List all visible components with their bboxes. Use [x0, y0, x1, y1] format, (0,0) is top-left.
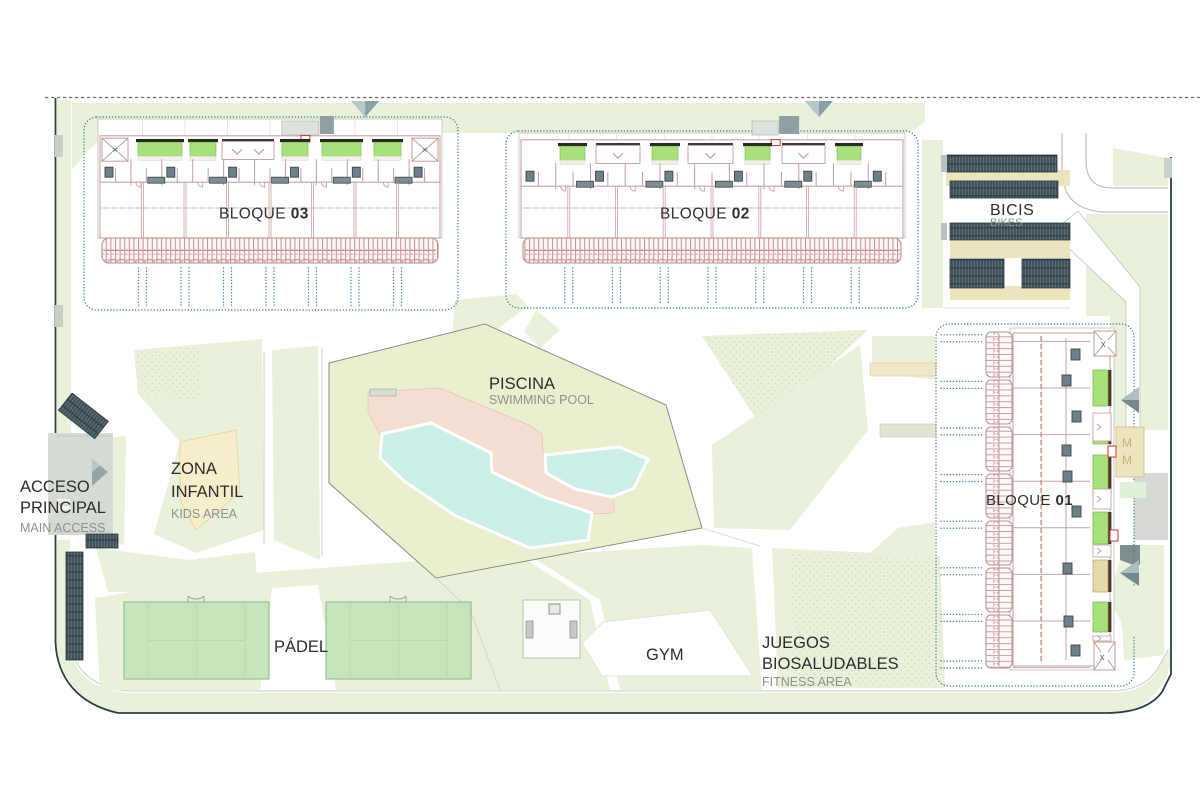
- svg-text:BLOQUE 02: BLOQUE 02: [660, 206, 750, 223]
- svg-text:JUEGOS: JUEGOS: [762, 634, 830, 652]
- svg-text:MAIN ACCESS: MAIN ACCESS: [20, 521, 105, 535]
- svg-text:PISCINA: PISCINA: [489, 375, 555, 393]
- svg-text:ZONA: ZONA: [171, 460, 217, 478]
- svg-text:BLOQUE 01: BLOQUE 01: [986, 492, 1073, 509]
- svg-text:M: M: [1122, 453, 1132, 467]
- svg-text:ACCESO: ACCESO: [20, 478, 90, 496]
- svg-text:x: x: [1101, 339, 1106, 349]
- svg-text:x: x: [1100, 652, 1105, 662]
- svg-text:FITNESS AREA: FITNESS AREA: [762, 675, 852, 689]
- svg-text:PÁDEL: PÁDEL: [274, 637, 328, 656]
- svg-text:GYM: GYM: [646, 646, 684, 664]
- svg-text:KIDS AREA: KIDS AREA: [171, 507, 238, 521]
- svg-text:BLOQUE 03: BLOQUE 03: [219, 206, 309, 223]
- svg-text:BIOSALUDABLES: BIOSALUDABLES: [762, 655, 899, 673]
- svg-text:BIKES: BIKES: [990, 217, 1022, 229]
- svg-text:SWIMMING POOL: SWIMMING POOL: [489, 393, 594, 407]
- svg-text:PRINCIPAL: PRINCIPAL: [20, 499, 106, 517]
- svg-text:M: M: [1122, 436, 1132, 450]
- svg-text:INFANTIL: INFANTIL: [171, 483, 243, 501]
